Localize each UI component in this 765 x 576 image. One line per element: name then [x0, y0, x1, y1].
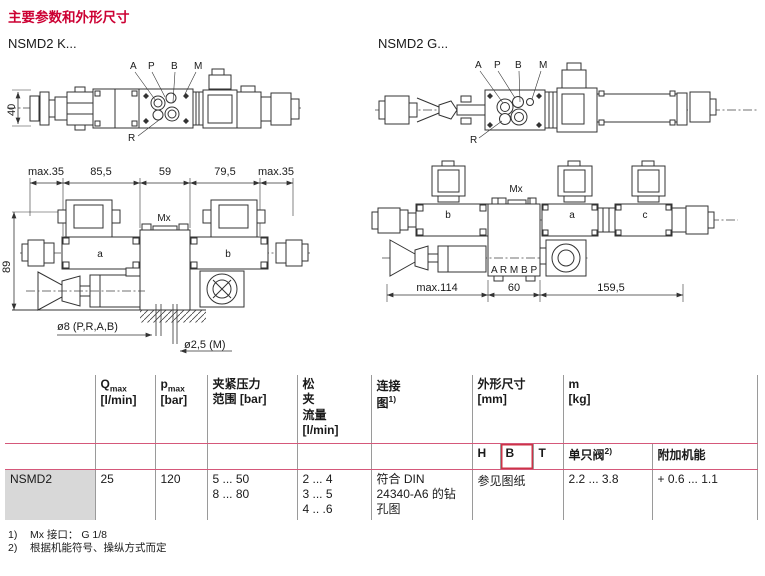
drawing-label-k: NSMD2 K...	[8, 36, 77, 51]
nsmd2-g-drawing: A P B M R	[373, 55, 765, 150]
dimensions-value: 参见图纸	[472, 469, 563, 520]
subheader-single-valve: 单只阀2)	[563, 443, 652, 469]
dim-89: 89	[1, 261, 13, 273]
dim-159-5: 159,5	[597, 282, 625, 294]
port-label-m: M	[194, 61, 202, 72]
subheader-H: H	[472, 443, 500, 469]
hole-note-m: ø2,5 (M)	[184, 339, 226, 351]
nsmd2-k-drawing: 40 A P B M R	[5, 56, 305, 156]
footnote-text: Mx 接口： G 1/8	[30, 529, 107, 542]
col-header-dimensions: 外形尺寸 [mm]	[472, 375, 563, 443]
model-cell: NSMD2	[5, 469, 95, 520]
port-label-p: P	[148, 61, 155, 72]
side-view-drawing: Mx b a c A R M B P	[370, 158, 765, 308]
port-label-r: R	[470, 135, 477, 146]
header-spacer-cell	[5, 375, 95, 443]
footnote-text: 根据机能符号、操纵方式而定	[30, 542, 167, 555]
footnote-number: 2)	[8, 542, 30, 555]
clamp-pressure-value: 5 ... 50 8 ... 80	[207, 469, 297, 520]
port-label-a: A	[130, 61, 137, 72]
footnote-1: 1) Mx 接口： G 1/8	[8, 529, 167, 542]
subheader-empty-cell	[155, 443, 207, 469]
subheader-empty-cell	[5, 443, 95, 469]
dim-max35-right: max.35	[258, 166, 294, 178]
front-view-drawing: max.35 85,5 59 79,5 max.35 89 a	[0, 158, 330, 364]
release-flow-value: 2 ... 4 3 ... 5 4 .. .6	[297, 469, 371, 520]
dim-79-5: 79,5	[214, 166, 235, 178]
footnote-2: 2) 根据机能符号、操纵方式而定	[8, 542, 167, 555]
parameters-table: Qmax[l/min] pmax[bar] 夹紧压力 范围 [bar] 松 夹 …	[5, 375, 758, 520]
subheader-empty-cell	[297, 443, 371, 469]
coil-label-c: c	[643, 210, 648, 221]
col-header-release-flow: 松 夹 流量 [l/min]	[297, 375, 371, 443]
hole-note-ports: ø8 (P,R,A,B)	[57, 321, 118, 333]
dim-max114: max.114	[416, 282, 457, 294]
col-header-clamp-pressure: 夹紧压力 范围 [bar]	[207, 375, 297, 443]
subheader-empty-cell	[95, 443, 155, 469]
coil-label-b: b	[225, 249, 231, 260]
connection-value: 符合 DIN 24340-A6 的钻 孔图	[371, 469, 472, 520]
col-header-mass: m [kg]	[563, 375, 757, 443]
addon-mass-value: + 0.6 ... 1.1	[652, 469, 757, 520]
mx-label: Mx	[509, 184, 522, 195]
port-label-r: R	[128, 133, 135, 144]
subheader-B-link-annotation[interactable]: B	[500, 443, 533, 469]
col-header-pmax: pmax[bar]	[155, 375, 207, 443]
pmax-value: 120	[155, 469, 207, 520]
drawing-label-g: NSMD2 G...	[378, 36, 448, 51]
single-valve-mass-value: 2.2 ... 3.8	[563, 469, 652, 520]
dim-85-5: 85,5	[90, 166, 111, 178]
coil-label-a: a	[569, 210, 575, 221]
footnote-number: 1)	[8, 529, 30, 542]
port-label-p: P	[494, 60, 501, 71]
dim-60: 60	[508, 282, 520, 294]
dim-max35-left: max.35	[28, 166, 64, 178]
subheader-T: T	[533, 443, 563, 469]
mx-label: Mx	[157, 213, 170, 224]
subheader-empty-cell	[207, 443, 297, 469]
port-label-b: B	[515, 60, 522, 71]
coil-label-a: a	[97, 249, 103, 260]
dim-40: 40	[6, 104, 18, 116]
port-label-m: M	[539, 60, 547, 71]
col-header-qmax: Qmax[l/min]	[95, 375, 155, 443]
subheader-addon-function: 附加机能	[652, 443, 757, 469]
port-row-label: A R M B P	[491, 265, 537, 276]
datasheet-page: 主要参数和外形尺寸 NSMD2 K... NSMD2 G... 40	[0, 0, 765, 576]
qmax-value: 25	[95, 469, 155, 520]
footnotes: 1) Mx 接口： G 1/8 2) 根据机能符号、操纵方式而定	[8, 529, 167, 555]
dim-59: 59	[159, 166, 171, 178]
port-label-b: B	[171, 61, 178, 72]
subheader-empty-cell	[371, 443, 472, 469]
col-header-connection: 连接图1)	[371, 375, 472, 443]
coil-label-b: b	[445, 210, 451, 221]
page-title: 主要参数和外形尺寸	[8, 6, 130, 26]
port-label-a: A	[475, 60, 482, 71]
